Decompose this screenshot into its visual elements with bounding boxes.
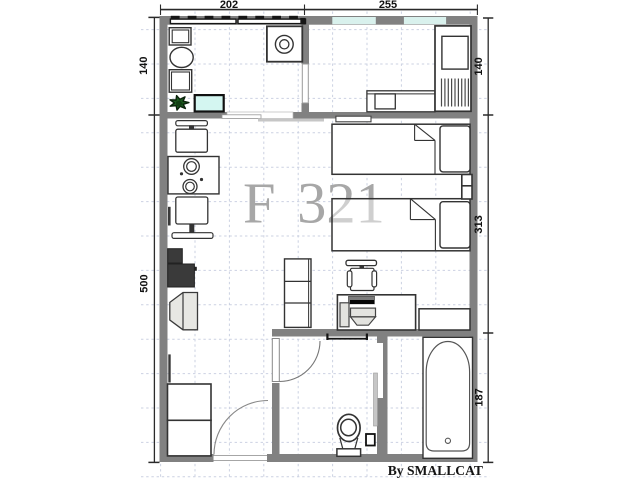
- svg-text:255: 255: [379, 0, 397, 11]
- svg-text:202: 202: [220, 0, 238, 11]
- svg-text:By SMALLCAT: By SMALLCAT: [388, 463, 483, 478]
- svg-text:140: 140: [138, 57, 150, 75]
- svg-text:500: 500: [138, 274, 150, 292]
- svg-text:140: 140: [473, 57, 485, 75]
- svg-text:313: 313: [473, 215, 485, 233]
- svg-text:187: 187: [474, 388, 486, 406]
